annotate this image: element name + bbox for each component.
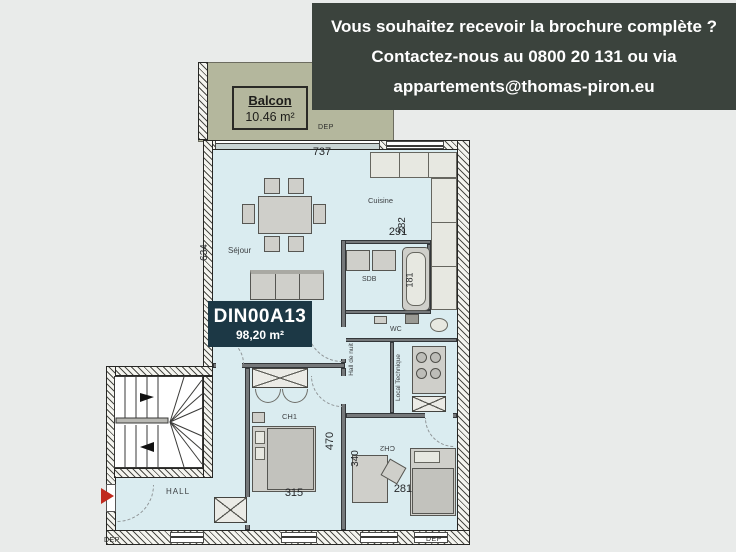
stair-top-wall	[106, 366, 213, 376]
dim-ch1-width: 315	[276, 487, 312, 499]
stair-right-wall	[203, 376, 213, 478]
toilet	[430, 318, 448, 332]
unit-code: DIN00A13	[214, 306, 307, 328]
pillow	[255, 447, 265, 460]
room-label-hall: HALL	[166, 487, 190, 496]
washing-machine	[372, 250, 396, 271]
hall-cupboard	[214, 497, 247, 523]
kitchen-counter-right	[431, 178, 457, 310]
boiler-burner	[430, 352, 441, 363]
stair-bottom-wall	[114, 468, 205, 478]
wc-sink	[374, 316, 387, 324]
unit-area: 98,20 m²	[236, 328, 284, 342]
chair	[288, 178, 304, 194]
bathroom-sink-unit	[346, 250, 370, 271]
pillow	[255, 431, 265, 444]
balcony-sliding-door	[215, 141, 380, 149]
room-label-sejour: Séjour	[228, 246, 251, 255]
promo-banner-line2: Contactez-nous au 0800 20 131 ou via	[312, 42, 736, 72]
dep-label-bottom-left: DEP	[104, 537, 120, 544]
chair	[264, 178, 280, 194]
boiler-burner	[416, 352, 427, 363]
balcony-area-value: 10.46 m²	[245, 110, 294, 124]
dim-ch2-height: 340	[350, 450, 361, 467]
pillow	[414, 451, 440, 463]
dim-cuisine-height-wrap: 282	[394, 203, 410, 247]
chair	[242, 204, 255, 224]
chair	[264, 236, 280, 252]
staircase	[114, 376, 203, 468]
dim-sejour-height-wrap: 634	[197, 226, 211, 278]
dep-label-balcony: DEP	[318, 124, 334, 131]
dim-sejour-height: 634	[199, 244, 210, 261]
balcony-left-wall	[198, 62, 208, 140]
room-label-local-technique-wrap: Local Technique	[390, 346, 406, 408]
kitchen-window	[386, 141, 444, 149]
screenshot-root: Balcon 10.46 m² DEP	[0, 0, 736, 552]
chair	[288, 236, 304, 252]
dim-ch2-width: 281	[386, 483, 420, 495]
boiler-burner	[430, 368, 441, 379]
balcony-name: Balcon	[248, 93, 291, 108]
ch1-wardrobe	[252, 368, 308, 388]
right-wall	[457, 140, 470, 545]
technique-cupboard	[412, 396, 446, 412]
promo-banner-line3: appartements@thomas-piron.eu	[312, 72, 736, 102]
partition-wc-technique	[345, 338, 457, 342]
partition-cuisine-sdb	[345, 240, 431, 244]
kitchen-counter-top	[370, 152, 457, 178]
boiler-burner	[416, 368, 427, 379]
dim-sejour-width: 737	[300, 146, 344, 158]
room-label-ch2: CH2	[380, 444, 395, 453]
dining-table	[258, 196, 312, 234]
room-label-hall-de-nuit-wrap: Hall de nuit	[344, 328, 358, 390]
unit-label-box: DIN00A13 98,20 m²	[208, 301, 312, 347]
dim-cuisine-width: 291	[378, 226, 418, 238]
balcony-label-box: Balcon 10.46 m²	[232, 86, 308, 130]
room-label-ch1: CH1	[282, 412, 297, 421]
promo-banner-line1: Vous souhaitez recevoir la brochure comp…	[312, 12, 736, 42]
room-label-sdb: SDB	[362, 276, 376, 283]
hall-window	[170, 532, 204, 543]
promo-banner: Vous souhaitez recevoir la brochure comp…	[312, 3, 736, 110]
dim-bath: 181	[405, 272, 415, 287]
ch2-window-left	[360, 532, 398, 543]
chair	[313, 204, 326, 224]
entrance-arrow-icon	[101, 488, 114, 504]
sofa	[250, 270, 324, 300]
dim-ch1-height: 470	[324, 432, 336, 450]
room-label-cuisine: Cuisine	[368, 196, 393, 205]
dim-ch2-height-wrap: 340	[348, 438, 362, 478]
room-label-wc: WC	[390, 326, 402, 333]
dim-ch1-height-wrap: 470	[323, 418, 337, 464]
ch1-window	[281, 532, 317, 543]
ch1-blanket	[267, 428, 314, 490]
wc-cistern	[405, 314, 419, 324]
dep-label-bottom-right: DEP	[426, 536, 442, 543]
ch1-nightstand	[252, 412, 265, 423]
room-label-local-technique: Local Technique	[395, 354, 402, 401]
room-label-hall-de-nuit: Hall de nuit	[348, 343, 355, 376]
dim-bath-wrap: 181	[403, 261, 417, 299]
